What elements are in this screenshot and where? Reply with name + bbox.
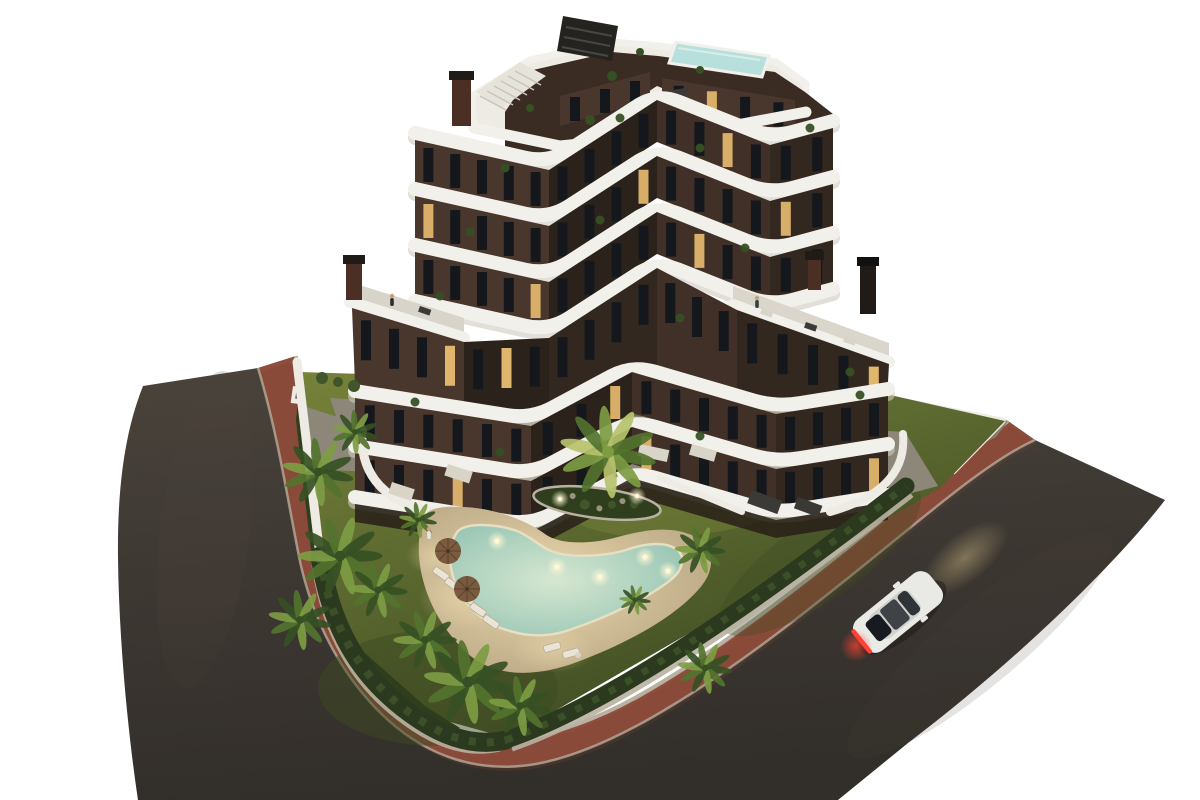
window [558, 278, 568, 312]
lit-window [639, 170, 649, 204]
window [482, 424, 492, 457]
window [813, 467, 823, 500]
window [751, 256, 761, 290]
garden-light [635, 494, 639, 498]
window [423, 415, 433, 448]
lit-window [531, 284, 541, 318]
window [612, 131, 622, 165]
roof-planter [607, 71, 617, 81]
person-figure [390, 294, 394, 306]
balcony-plant [496, 448, 505, 457]
window [543, 422, 553, 455]
window [450, 210, 460, 244]
balcony-plant [466, 228, 475, 237]
palm-crown [416, 518, 421, 523]
pool-light [554, 564, 559, 569]
window [585, 205, 595, 239]
palm-crown [374, 586, 381, 593]
window [453, 419, 463, 452]
window [511, 484, 521, 517]
window [482, 479, 492, 512]
parasol [435, 538, 461, 564]
window [751, 200, 761, 234]
window [666, 111, 676, 145]
chimney [860, 262, 876, 314]
pool-light [494, 538, 499, 543]
balcony-plant [411, 398, 420, 407]
window [869, 403, 879, 436]
palm-crown [314, 468, 323, 477]
window [585, 261, 595, 295]
window [531, 172, 541, 206]
window [639, 114, 649, 148]
palm-crown [516, 702, 524, 710]
window [612, 243, 622, 277]
window [361, 320, 371, 360]
window [641, 381, 651, 414]
window [778, 334, 788, 374]
lit-window [694, 234, 704, 268]
balcony-plant [676, 314, 685, 323]
roof-planter [696, 66, 704, 74]
person-head [427, 527, 431, 531]
palm-crown [697, 547, 703, 553]
person-head [755, 296, 759, 300]
balcony-plant [856, 391, 865, 400]
balcony-plant [596, 216, 605, 225]
window [504, 222, 514, 256]
terrace-shrub [348, 380, 360, 392]
window [728, 406, 738, 439]
window [477, 216, 487, 250]
palm-crown [602, 446, 614, 458]
window [585, 149, 595, 183]
window [723, 189, 733, 223]
window [670, 390, 680, 423]
lit-window [781, 202, 791, 236]
lit-window [445, 346, 455, 386]
window [841, 463, 851, 496]
pool-light [665, 568, 670, 573]
side-table [575, 652, 581, 658]
window [423, 470, 433, 503]
person-body [390, 298, 394, 306]
balcony-plant [741, 244, 750, 253]
window [477, 272, 487, 306]
window [639, 226, 649, 260]
balcony-plant [846, 368, 855, 377]
window [813, 412, 823, 445]
window [558, 337, 568, 377]
lit-window [423, 204, 433, 238]
window [785, 472, 795, 505]
window [450, 266, 460, 300]
window [785, 417, 795, 450]
window [723, 245, 733, 279]
window [694, 178, 704, 212]
window [504, 278, 514, 312]
window [639, 285, 649, 325]
window [558, 166, 568, 200]
window [511, 429, 521, 462]
window [585, 320, 595, 360]
window [808, 345, 818, 385]
roof-planter [526, 104, 534, 112]
lit-window [610, 386, 620, 419]
window [670, 445, 680, 478]
window [558, 222, 568, 256]
lit-window [502, 348, 512, 388]
window [417, 337, 427, 377]
window [781, 146, 791, 180]
chimney-cap [857, 257, 879, 266]
balcony-plant [696, 144, 705, 153]
window [841, 408, 851, 441]
chimney [346, 260, 362, 300]
terrace-shrub [316, 372, 328, 384]
window [477, 160, 487, 194]
chimney [452, 76, 471, 126]
window [751, 144, 761, 178]
person-body [755, 300, 759, 308]
window [740, 97, 750, 121]
palm-crown [463, 677, 474, 688]
lit-window [723, 133, 733, 167]
parasol-pole [446, 549, 450, 553]
person-head [390, 294, 394, 298]
chimney-cap [343, 255, 365, 264]
palm-crown [296, 616, 304, 624]
window [757, 415, 767, 448]
balcony-plant [696, 432, 705, 441]
render-stage: Aerial dusk render of a modern apartment… [0, 0, 1200, 800]
window [389, 329, 399, 369]
pool-light [642, 554, 647, 559]
window [531, 228, 541, 262]
parasol [454, 576, 480, 602]
scene-canvas: Aerial dusk render of a modern apartment… [0, 0, 1200, 800]
window [747, 323, 757, 363]
window [530, 347, 540, 387]
window [699, 398, 709, 431]
window [450, 154, 460, 188]
window [728, 461, 738, 494]
chimney-cap [449, 71, 474, 80]
terrace-shrub [333, 377, 343, 387]
window [666, 167, 676, 201]
window [600, 89, 610, 113]
balcony-plant [806, 124, 815, 133]
window [781, 258, 791, 292]
window [665, 283, 675, 323]
palm-crown [335, 551, 345, 561]
window [666, 223, 676, 257]
window [612, 187, 622, 221]
window [423, 148, 433, 182]
palm-crown [633, 598, 638, 603]
person-figure [755, 296, 759, 308]
parasol-pole [465, 587, 469, 591]
balcony-plant [436, 292, 445, 301]
person-body [427, 531, 431, 539]
roof-planter [585, 115, 595, 125]
pool-light [597, 574, 602, 579]
person-figure [427, 527, 431, 539]
window [612, 302, 622, 342]
chimney-cap [805, 251, 824, 260]
palm-crown [352, 429, 358, 435]
window [394, 410, 404, 443]
balcony-plant [616, 114, 625, 123]
window [812, 193, 822, 227]
palm-crown [702, 665, 709, 672]
garden-light [558, 497, 562, 501]
window [692, 297, 702, 337]
window [812, 137, 822, 171]
window [719, 311, 729, 351]
balcony-plant [501, 164, 510, 173]
window [473, 349, 483, 389]
window [570, 97, 580, 121]
palm-crown [421, 636, 429, 644]
roof-planter [636, 48, 644, 56]
window [423, 260, 433, 294]
chimney [808, 256, 821, 290]
